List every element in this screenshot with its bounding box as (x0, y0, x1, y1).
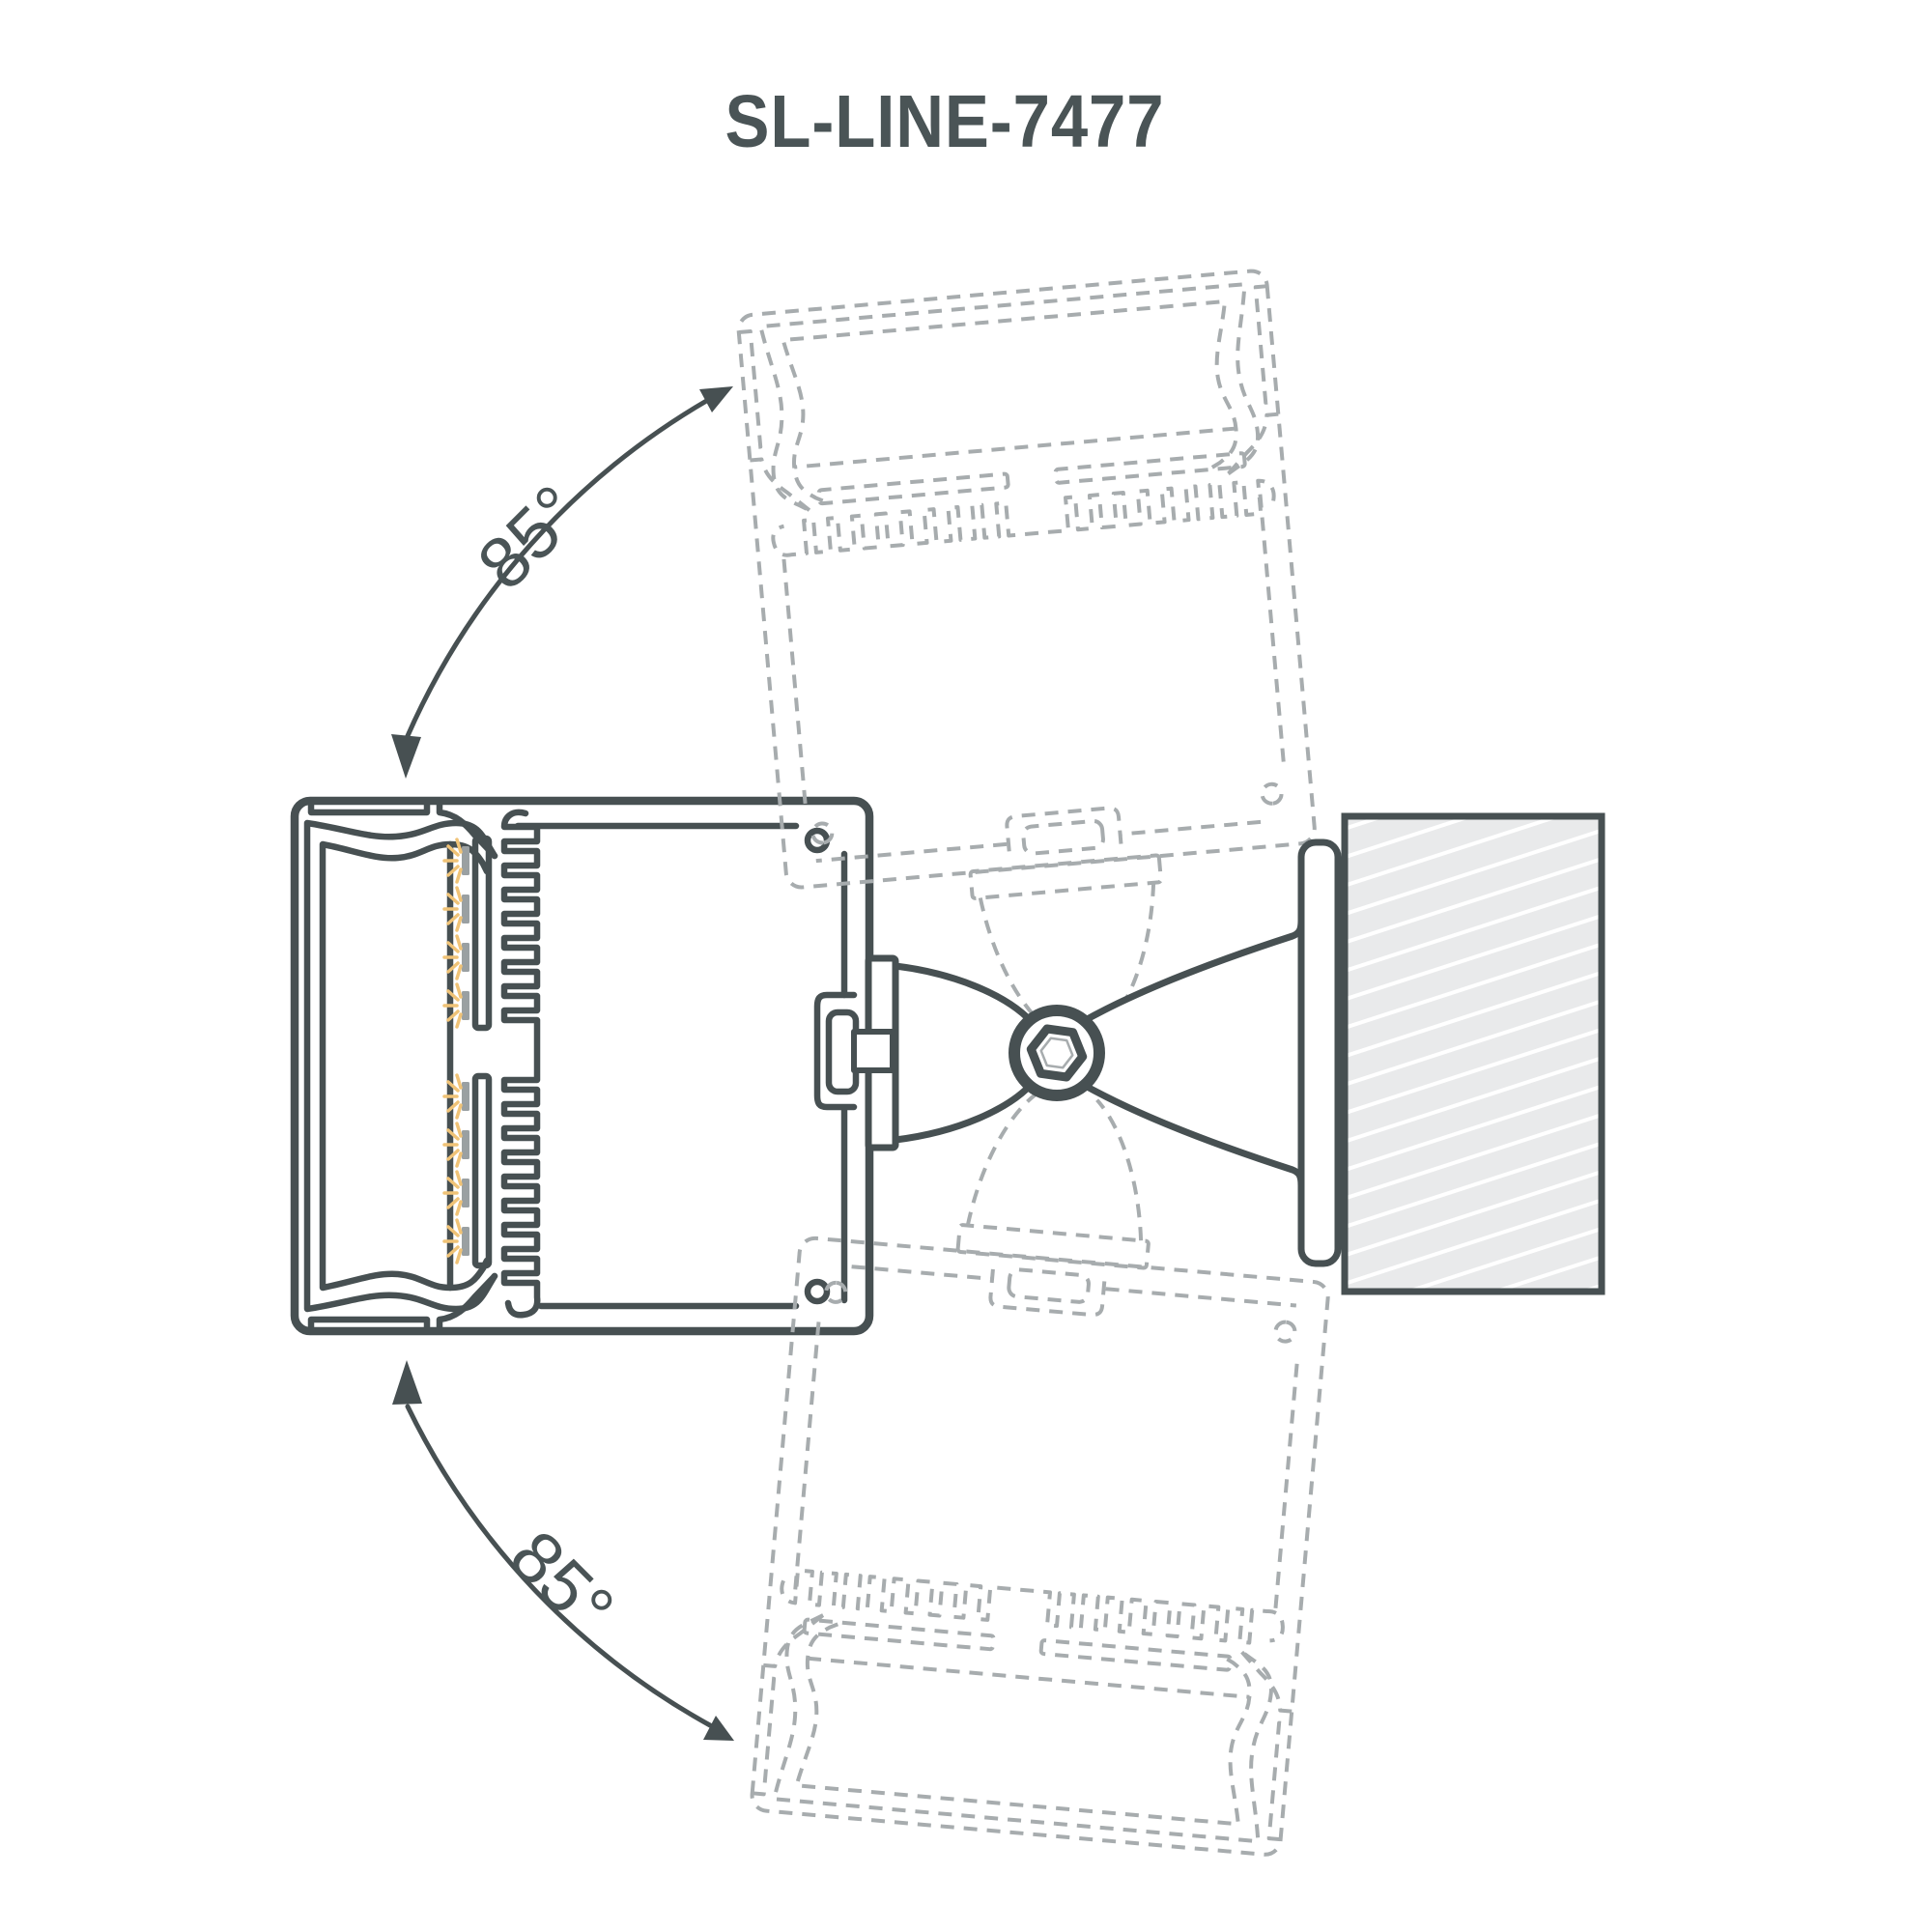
diagram-canvas: SL-LINE-7477 85° 85° (0, 0, 1932, 1932)
page-background (0, 0, 1932, 1932)
product-title: SL-LINE-7477 (725, 80, 1165, 163)
bracket-wall-plate (1301, 842, 1338, 1264)
wall-hatch-block (1345, 816, 1602, 1292)
housing-fill (295, 801, 869, 1331)
latch-tab (854, 1032, 893, 1070)
luminaire-cross-section (295, 801, 869, 1331)
wall-section (1345, 816, 1602, 1292)
hex-screw-icon (1014, 1010, 1099, 1095)
technical-drawing-page: SL-LINE-7477 85° 85° (0, 0, 1932, 1932)
